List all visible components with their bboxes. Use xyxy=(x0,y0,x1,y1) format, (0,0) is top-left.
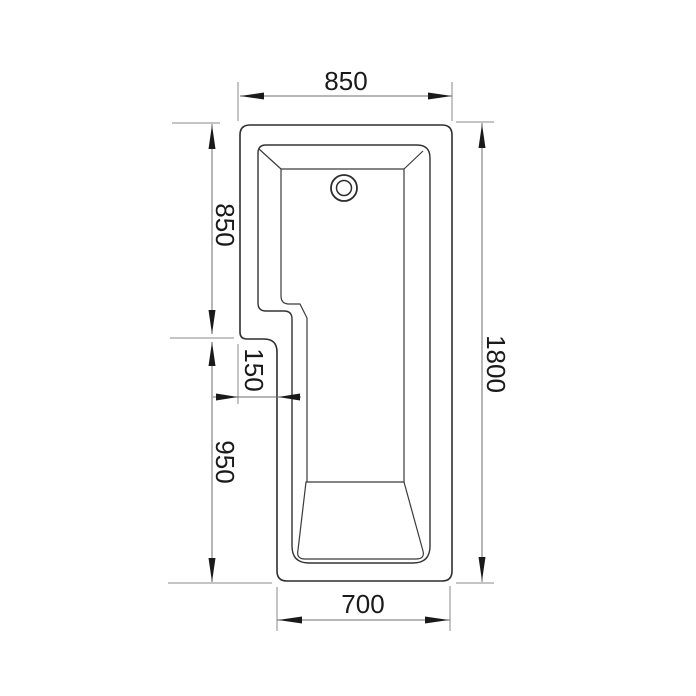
bath-outer-outline xyxy=(240,125,452,581)
dim-label-overall-height: 1800 xyxy=(481,335,511,393)
dim-label-upper-left-height: 850 xyxy=(210,203,240,246)
arrow-up-icon xyxy=(209,342,216,366)
dim-overall-height: 1800 xyxy=(456,122,511,583)
dim-label-bottom-width: 700 xyxy=(341,589,384,619)
bath-plan-drawing: 850 850 950 150 xyxy=(0,0,696,696)
dim-bottom-width: 700 xyxy=(277,586,450,631)
arrow-left-icon xyxy=(278,617,302,624)
technical-drawing-page: 850 850 950 150 xyxy=(0,0,696,696)
arrow-right-icon xyxy=(216,394,238,401)
arrow-down-icon xyxy=(479,557,486,581)
arrow-right-icon xyxy=(425,617,449,624)
dim-label-lower-left-height: 950 xyxy=(210,440,240,483)
dim-label-step-width: 150 xyxy=(239,348,269,391)
arrow-down-icon xyxy=(209,310,216,334)
dim-upper-left-height: 850 xyxy=(170,123,240,338)
dim-label-top-width: 850 xyxy=(324,66,367,96)
arrow-right-icon xyxy=(428,93,452,100)
arrow-left-icon xyxy=(240,93,264,100)
arrow-down-icon xyxy=(209,558,216,582)
arrow-up-icon xyxy=(479,124,486,148)
arrow-up-icon xyxy=(209,125,216,149)
dim-top-width: 850 xyxy=(238,66,452,121)
bath-body xyxy=(240,125,452,581)
